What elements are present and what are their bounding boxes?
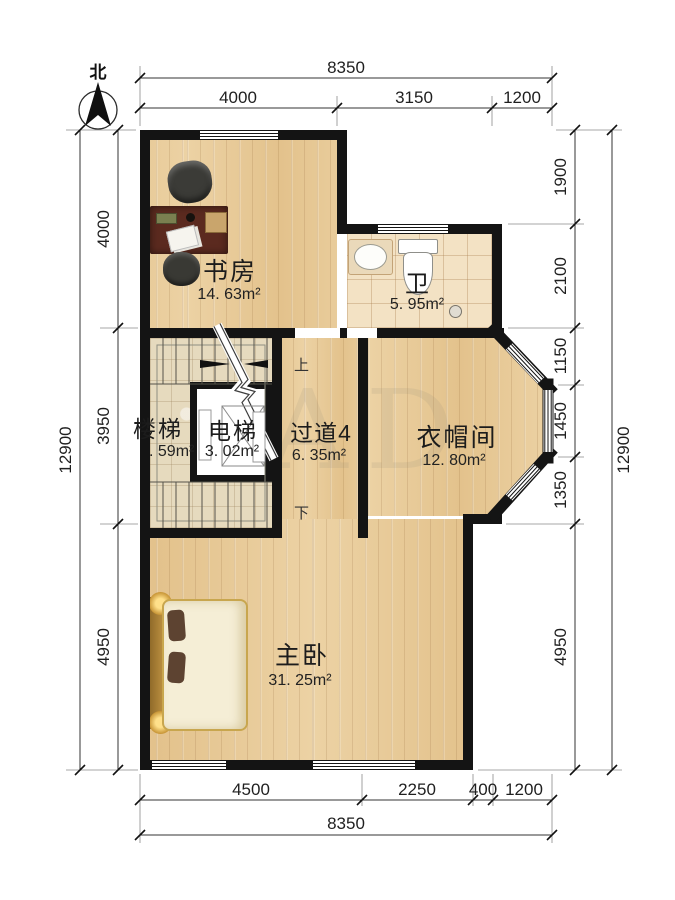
dim-left-seg1: 4000 [94, 210, 114, 248]
compass: 北 [70, 58, 126, 140]
sink-basin [354, 244, 387, 270]
wall-mid-stub [340, 328, 347, 338]
north-label: 北 [90, 58, 107, 83]
window-study-top [200, 130, 278, 140]
dim-bottom-total: 8350 [327, 814, 365, 834]
pillow-top [167, 609, 186, 641]
dim-top-seg3: 1200 [503, 88, 541, 108]
elevator-area: 3. 02m² [205, 443, 259, 461]
wall-bay-step [463, 514, 502, 524]
wall-study-right [337, 130, 347, 234]
wall-hall-right [358, 338, 368, 538]
wall-stairs-bottom [140, 528, 282, 538]
bath-label: 卫 [405, 264, 431, 299]
dim-left-total: 12900 [56, 426, 76, 473]
dim-left-seg3: 4950 [94, 628, 114, 666]
floor-plan: AD [0, 0, 675, 900]
desk-box [205, 212, 227, 233]
dim-top-total: 8350 [327, 58, 365, 78]
dim-bottom-seg3: 400 [469, 780, 497, 800]
desk-keyboard [156, 213, 177, 224]
dim-top-seg2: 3150 [395, 88, 433, 108]
wall-mid-left [140, 328, 295, 338]
window-bottom-right [313, 760, 415, 770]
stair-up-label: 上 [294, 354, 309, 375]
window-bath-top [378, 224, 448, 234]
dim-right-total: 12900 [614, 426, 634, 473]
hallway-area: 6. 35m² [292, 447, 346, 465]
wall-bath-right [492, 224, 502, 338]
study-area: 14. 63m² [197, 286, 260, 304]
dim-top-seg1: 4000 [219, 88, 257, 108]
dim-bottom-seg1: 4500 [232, 780, 270, 800]
elevator-label: 电梯 [208, 412, 258, 446]
dim-right-seg5: 1350 [551, 471, 571, 509]
study-label: 书房 [203, 252, 257, 288]
stair-down-label: 下 [294, 502, 309, 523]
guest-chair [163, 252, 200, 286]
wall-bath-bottom [377, 328, 504, 338]
pillow-bottom [167, 651, 186, 683]
desk-cup [186, 213, 195, 222]
dim-bottom-seg4: 1200 [505, 780, 543, 800]
window-bottom-left [152, 760, 226, 770]
floor-drain [449, 305, 462, 318]
master-area: 31. 25m² [268, 672, 331, 690]
bed-headboard [148, 597, 162, 729]
closet-label: 衣帽间 [416, 418, 497, 454]
wall-hall-left [272, 338, 282, 528]
dim-right-seg4: 1450 [551, 402, 571, 440]
wall-bed-right [463, 514, 473, 770]
dim-right-seg2: 2100 [551, 257, 571, 295]
stairs-label: 楼梯 [133, 410, 183, 444]
north-arrow-icon [70, 78, 126, 138]
dim-right-seg1: 1900 [551, 158, 571, 196]
stairs-area: . 59m² [149, 443, 194, 461]
master-label: 主卧 [275, 636, 329, 672]
dim-right-seg3: 1150 [551, 338, 571, 375]
dim-bottom-seg2: 2250 [398, 780, 436, 800]
bath-area: 5. 95m² [390, 296, 444, 314]
hallway-label: 过道4 [290, 414, 352, 448]
dim-left-seg2: 3950 [94, 407, 114, 445]
closet-area: 12. 80m² [422, 452, 485, 470]
dim-right-seg6: 4950 [551, 628, 571, 666]
